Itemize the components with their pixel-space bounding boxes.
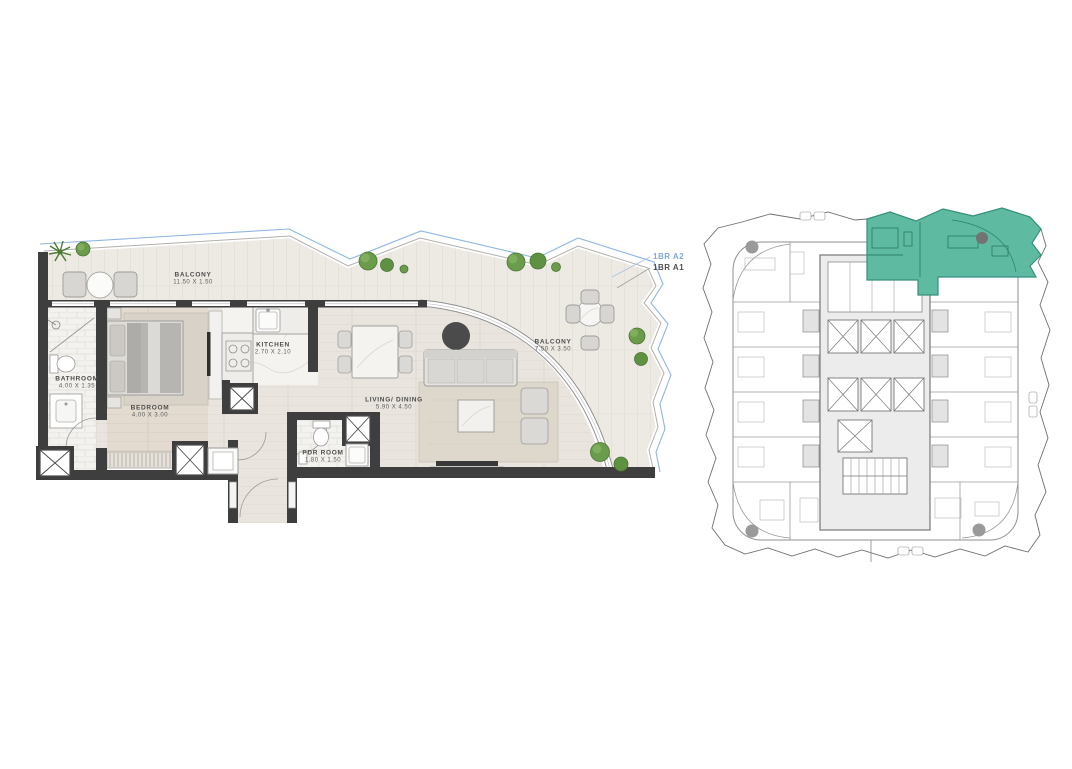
- dining-chair: [338, 331, 351, 348]
- outdoor-chair: [581, 336, 599, 350]
- toilet: [57, 356, 75, 372]
- dining-table: [352, 326, 398, 378]
- shaft: [36, 446, 74, 480]
- unit-callout-1br-a2: 1BR A2: [653, 252, 684, 261]
- floorplan-page: BALCONY 11.50 X 1.50 BATHROOM 4.00 X 1.3…: [0, 0, 1072, 769]
- dining-chair: [399, 331, 412, 348]
- round-side-table: [442, 322, 470, 350]
- shaft: [342, 412, 374, 446]
- stairs: [843, 458, 907, 494]
- dining-chair: [399, 356, 412, 373]
- lounge-chair: [63, 272, 86, 297]
- tv: [207, 332, 211, 376]
- lounge-chair: [114, 272, 137, 297]
- coffee-table: [458, 400, 494, 432]
- keyplan-core: [820, 255, 930, 530]
- unit-floorplan: [36, 229, 671, 523]
- key-plan: [703, 208, 1050, 562]
- shaft: [172, 441, 208, 479]
- tv: [436, 461, 498, 466]
- dining-chair: [338, 356, 351, 373]
- outdoor-chair: [566, 305, 580, 323]
- nightstand: [107, 397, 121, 408]
- closet: [208, 448, 238, 474]
- nightstand: [107, 308, 121, 319]
- side-table: [87, 272, 113, 298]
- floorplan-graphic: [0, 0, 1072, 769]
- outdoor-chair: [581, 290, 599, 304]
- unit-callout-1br-a1: 1BR A1: [653, 263, 684, 272]
- tv-console: [209, 311, 222, 399]
- shaft: [226, 383, 258, 414]
- armchair: [521, 388, 548, 414]
- outdoor-chair: [600, 305, 614, 323]
- sink: [299, 452, 307, 464]
- toilet: [314, 428, 329, 446]
- armchair: [521, 418, 548, 444]
